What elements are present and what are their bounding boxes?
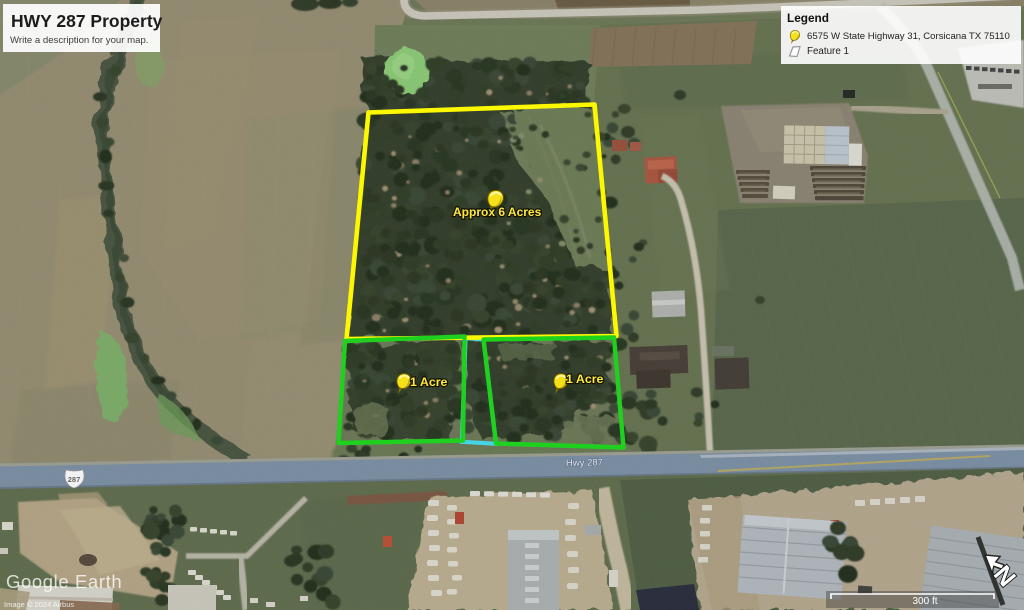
svg-text:287: 287: [68, 475, 81, 484]
svg-text:Approx 6 Acres: Approx 6 Acres: [453, 205, 542, 219]
svg-text:Hwy 287: Hwy 287: [566, 457, 603, 469]
svg-text:Google Earth: Google Earth: [6, 571, 122, 592]
svg-text:Image © 2024 Airbus: Image © 2024 Airbus: [4, 600, 74, 609]
svg-text:6575 W State Highway 31, Corsi: 6575 W State Highway 31, Corsicana TX 75…: [807, 31, 1010, 42]
svg-text:Feature 1: Feature 1: [807, 46, 849, 57]
svg-text:Write a description for your m: Write a description for your map.: [10, 35, 148, 46]
svg-text:Legend: Legend: [787, 11, 829, 25]
svg-text:HWY 287 Property: HWY 287 Property: [11, 11, 163, 31]
svg-text:1 Acre: 1 Acre: [410, 375, 448, 389]
svg-text:1 Acre: 1 Acre: [566, 372, 604, 386]
svg-text:300 ft: 300 ft: [912, 596, 937, 607]
